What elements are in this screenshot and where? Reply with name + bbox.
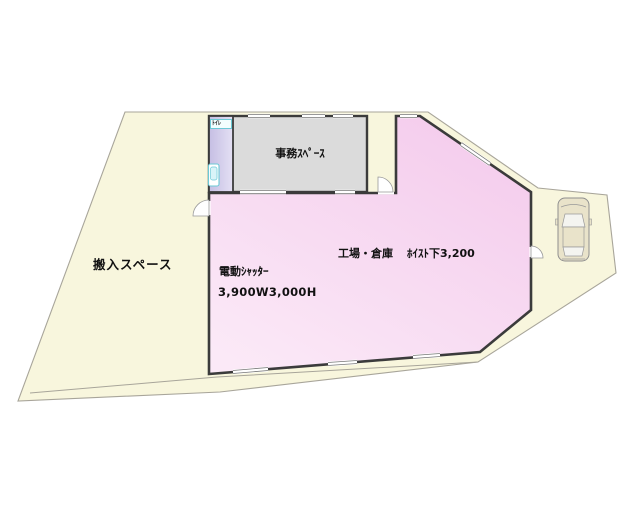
shutter-dimensions: 3,900W3,000H	[218, 287, 317, 299]
car-icon	[556, 198, 592, 261]
sink-icon	[209, 164, 220, 186]
carry-in-space-label: 搬入スペース	[93, 259, 173, 272]
floorplan-drawing	[0, 0, 640, 509]
office-space-label: 事務ｽﾍﾟｰｽ	[233, 148, 367, 159]
floorplan-canvas: ﾄｲﾚ 事務ｽﾍﾟｰｽ 工場・倉庫ﾎｲｽﾄ下3,200 電動ｼｬｯﾀｰ 3,90…	[0, 0, 640, 509]
warehouse-label: 工場・倉庫ﾎｲｽﾄ下3,200	[338, 248, 475, 259]
toilet-room-label: ﾄｲﾚ	[212, 121, 221, 127]
warehouse-name: 工場・倉庫	[338, 247, 393, 260]
electric-shutter-label: 電動ｼｬｯﾀｰ	[219, 266, 269, 277]
hoist-height-note: ﾎｲｽﾄ下3,200	[407, 247, 475, 260]
